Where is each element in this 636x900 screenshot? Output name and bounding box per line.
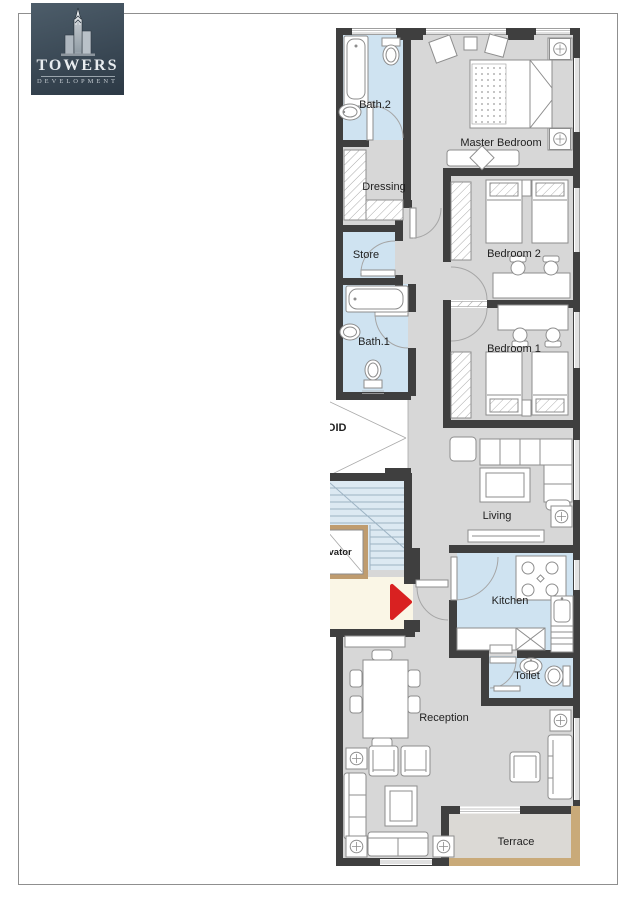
nightstand	[522, 180, 531, 196]
room-label-reception: Reception	[419, 712, 469, 724]
cushion-icon	[485, 34, 508, 57]
room-label-terrace: Terrace	[498, 836, 535, 848]
room-label-master-bedroom: Master Bedroom	[460, 137, 541, 149]
bed-icon	[486, 352, 522, 415]
brand-name: TOWERS	[37, 58, 119, 74]
skyscraper-icon	[56, 7, 100, 57]
shelf-icon	[551, 626, 573, 652]
lamp-icon	[551, 506, 572, 527]
sofa-icon	[344, 773, 366, 839]
counter-icon	[457, 628, 545, 653]
room-label-store: Store	[353, 249, 379, 261]
lamp-icon	[346, 836, 367, 857]
sink-icon	[340, 324, 360, 340]
logo-divider	[41, 76, 115, 77]
lamp-icon	[550, 39, 571, 60]
pouf-icon	[450, 437, 476, 461]
room-label-bath1: Bath.1	[358, 336, 390, 348]
room-label-living: Living	[483, 510, 512, 522]
chaise-icon	[548, 735, 572, 799]
brochure-page: TOWERS DEVELOPMENT	[0, 0, 636, 900]
bed-icon	[486, 180, 522, 243]
sink-icon	[339, 104, 361, 120]
bed-icon	[532, 352, 568, 415]
stove-icon	[516, 556, 566, 600]
bathtub-icon	[344, 36, 368, 106]
lamp-icon	[550, 710, 571, 731]
room-label-toilet: Toilet	[514, 670, 540, 682]
coffee-table-icon	[480, 468, 530, 502]
towers-development-logo: TOWERS DEVELOPMENT	[31, 3, 124, 95]
bedroom-threshold	[451, 300, 487, 308]
sofa-icon	[368, 832, 428, 856]
room-label-bath2: Bath.2	[359, 99, 391, 111]
nightstand	[522, 400, 531, 416]
wardrobe-icon	[451, 182, 471, 260]
floor-plan: Bath.2 Master Bedroom Dressing Store Bed…	[0, 0, 636, 900]
decor-icon	[464, 37, 477, 50]
armchair-icon	[369, 746, 398, 776]
room-label-dressing: Dressing	[362, 181, 405, 193]
room-label-bedroom2: Bedroom 2	[487, 248, 541, 260]
lamp-icon	[433, 836, 454, 857]
tv-console-icon	[468, 530, 544, 542]
armchair-icon	[401, 746, 430, 776]
room-label-kitchen: Kitchen	[492, 595, 529, 607]
lamp-icon	[550, 129, 571, 150]
coffee-table-icon	[385, 786, 417, 826]
armchair-icon	[510, 752, 540, 782]
bathtub-icon	[346, 286, 408, 312]
brand-tagline: DEVELOPMENT	[37, 79, 118, 86]
double-bed-icon	[470, 60, 552, 128]
mat-icon	[494, 686, 520, 691]
toilet-icon	[382, 38, 400, 65]
room-label-bedroom1: Bedroom 1	[487, 343, 541, 355]
console-icon	[345, 636, 405, 647]
lamp-icon	[346, 748, 367, 769]
void-area	[325, 396, 408, 480]
bed-icon	[532, 180, 568, 243]
room-label-elevator: Elevator	[314, 547, 352, 558]
kitchen-sink-icon	[551, 596, 573, 626]
toilet-icon	[545, 666, 570, 686]
wardrobe-icon	[451, 352, 471, 418]
room-label-void: VOID	[320, 422, 347, 434]
